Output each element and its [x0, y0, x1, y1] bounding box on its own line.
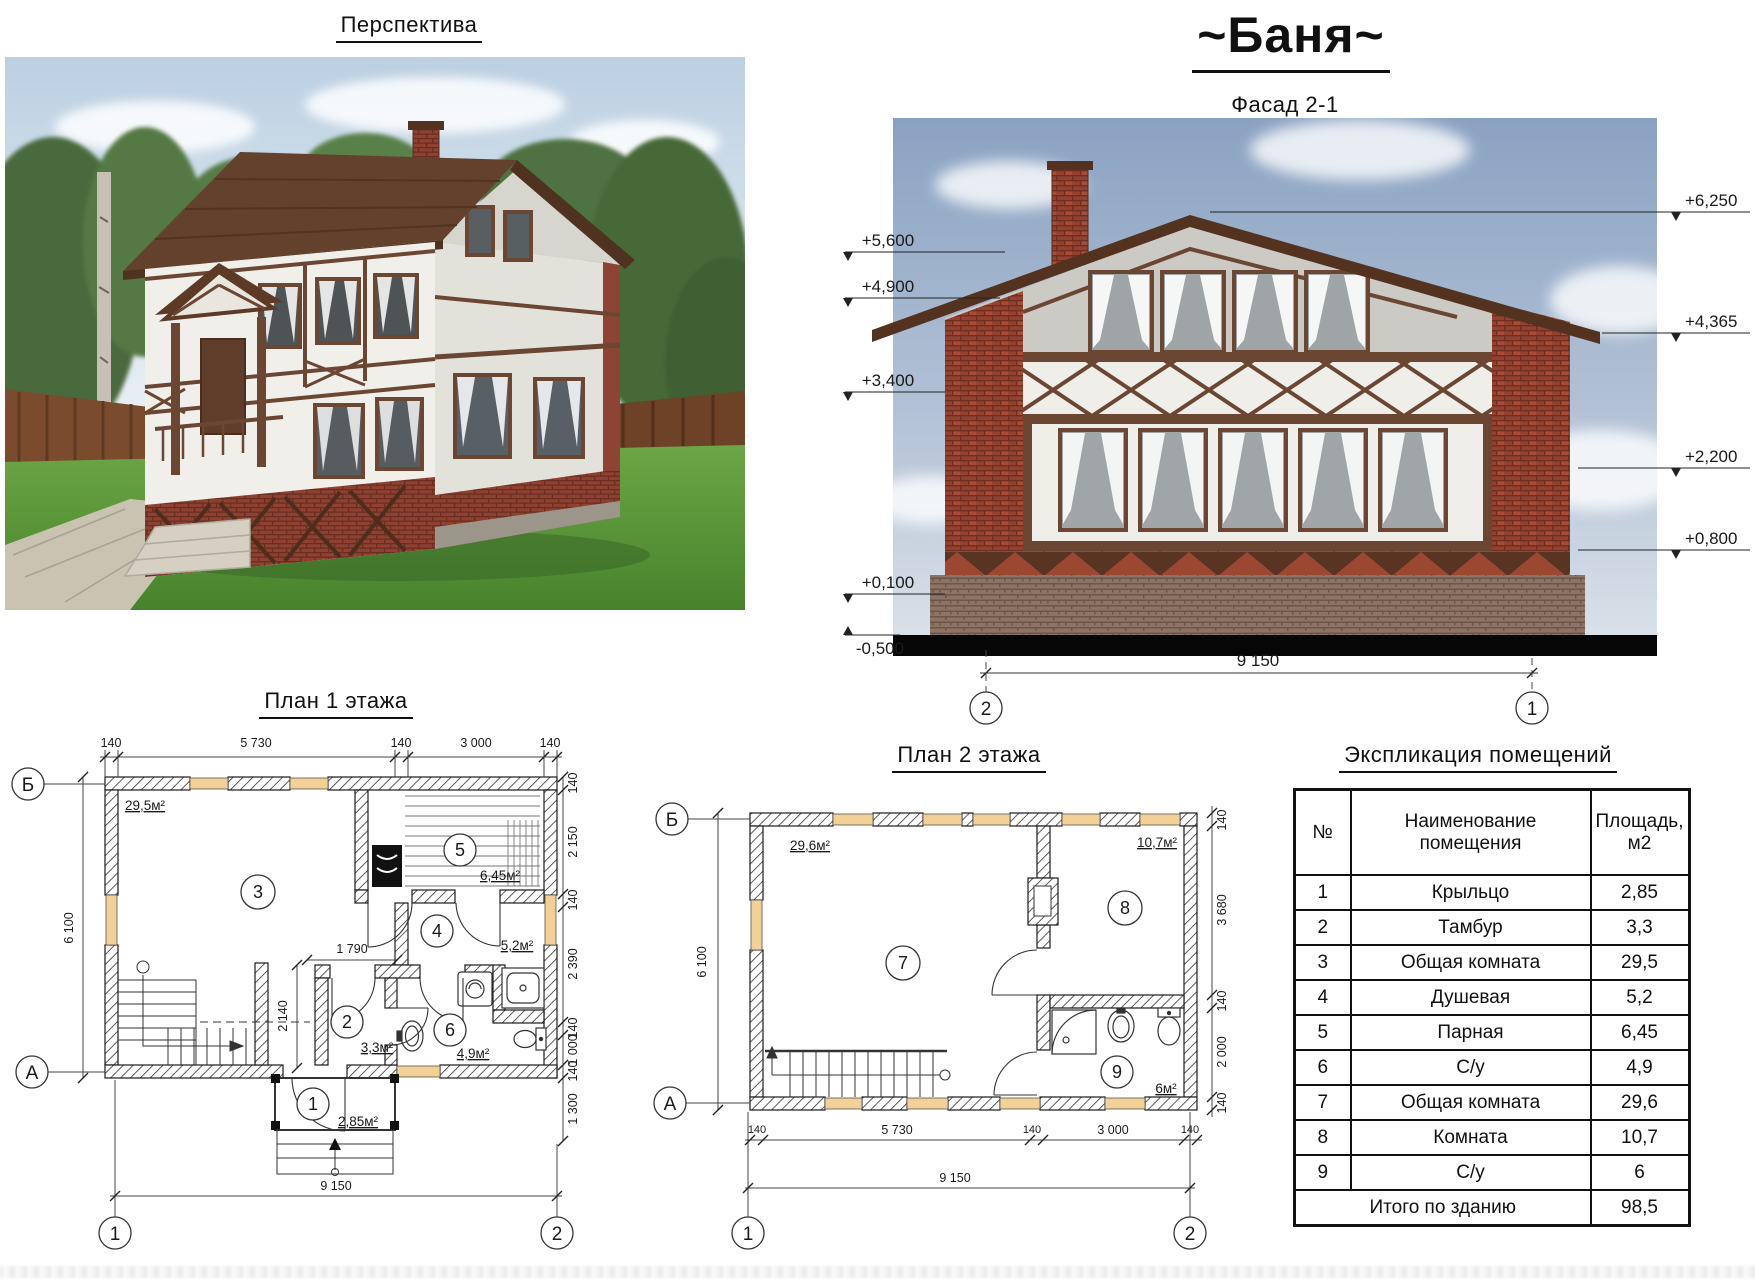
svg-text:140: 140	[1023, 1124, 1041, 1136]
row-area: 4,9	[1591, 1050, 1690, 1085]
row-area: 6,45	[1591, 1015, 1690, 1050]
plan2-shower-icon	[1052, 1010, 1096, 1054]
mark-3400: +3,400	[862, 371, 914, 390]
total-value: 98,5	[1591, 1190, 1690, 1226]
mark-4365: +4,365	[1685, 312, 1737, 331]
mark-5600: +5,600	[862, 231, 914, 250]
room-number: 3	[253, 882, 263, 902]
table-header-row: № Наименование помещения Площадь, м2	[1295, 790, 1690, 876]
mark-0100: +0,100	[862, 573, 914, 592]
porch	[271, 1074, 399, 1176]
room-area: 2,85м²	[338, 1114, 379, 1129]
scan-noise-strip	[0, 1266, 1755, 1278]
svg-text:2 000: 2 000	[1215, 1036, 1229, 1067]
room-number: 8	[1120, 898, 1130, 918]
table-row: 5 Парная 6,45	[1295, 1015, 1690, 1050]
row-num: 7	[1295, 1085, 1351, 1120]
room-area: 3,3м²	[361, 1040, 394, 1055]
chimney-flue	[1034, 886, 1051, 916]
svg-text:9 150: 9 150	[939, 1171, 970, 1185]
plan2-drawing: 7 29,6м² 8 10,7м² 9 6м² 6 100 140	[595, 655, 1255, 1280]
room-number: 1	[308, 1094, 318, 1114]
axis-b: Б	[22, 775, 34, 796]
row-num: 1	[1295, 875, 1351, 910]
svg-text:2 150: 2 150	[566, 826, 580, 857]
svg-text:5 730: 5 730	[881, 1123, 912, 1137]
room-area: 5,2м²	[501, 938, 534, 953]
plan2-dimensions	[718, 806, 1212, 1217]
table-row: 9 С/у 6	[1295, 1155, 1690, 1190]
row-area: 5,2	[1591, 980, 1690, 1015]
facade-drawing-main: +5,600 +4,900 +3,400 +0,100 -0,500 +6,25…	[760, 115, 1755, 730]
room-number: 2	[342, 1012, 352, 1032]
svg-text:3 000: 3 000	[1097, 1123, 1128, 1137]
row-area: 6	[1591, 1155, 1690, 1190]
row-area: 2,85	[1591, 875, 1690, 910]
col-number-header: №	[1295, 790, 1351, 876]
room-area: 6м²	[1155, 1081, 1177, 1096]
total-label: Итого по зданию	[1295, 1190, 1591, 1226]
axis-a: А	[26, 1063, 39, 1084]
row-num: 6	[1295, 1050, 1351, 1085]
plan2-rooms: 7 29,6м² 8 10,7м² 9 6м²	[790, 835, 1178, 1096]
row-name: С/у	[1351, 1155, 1591, 1190]
explication-title: Экспликация помещений	[1278, 742, 1678, 773]
row-num: 3	[1295, 945, 1351, 980]
row-area: 10,7	[1591, 1120, 1690, 1155]
row-name: Душевая	[1351, 980, 1591, 1015]
table-row: 8 Комната 10,7	[1295, 1120, 1690, 1155]
table-row: 1 Крыльцо 2,85	[1295, 875, 1690, 910]
svg-text:140: 140	[1215, 810, 1229, 831]
room-number: 4	[432, 921, 442, 941]
room-number: 9	[1112, 1062, 1122, 1082]
drawing-sheet: Перспектива ~Баня~ Фасад 2-1 План 1 этаж…	[0, 0, 1755, 1280]
row-name: Тамбур	[1351, 910, 1591, 945]
row-num: 8	[1295, 1120, 1351, 1155]
mark-6250: +6,250	[1685, 191, 1737, 210]
svg-text:140: 140	[540, 736, 561, 750]
axis-1: 1	[110, 1224, 121, 1245]
plan1-drawing: 3 29,5м² 5 6,45м² 4 5,2м² 2 3,3м² 6 4,9м…	[0, 630, 600, 1280]
room-number: 6	[445, 1020, 455, 1040]
main-title: ~Баня~	[1091, 6, 1491, 73]
svg-text:5 730: 5 730	[240, 736, 271, 750]
svg-text:6 100: 6 100	[695, 946, 709, 977]
plan2-sink-icon	[1108, 1008, 1134, 1042]
row-area: 29,6	[1591, 1085, 1690, 1120]
row-name: Общая комната	[1351, 1085, 1591, 1120]
room-number: 5	[455, 840, 465, 860]
row-area: 3,3	[1591, 910, 1690, 945]
perspective-title: Перспектива	[259, 12, 559, 43]
table-row: 6 С/у 4,9	[1295, 1050, 1690, 1085]
svg-text:140: 140	[566, 1061, 580, 1082]
svg-text:140: 140	[1215, 1093, 1229, 1114]
svg-text:140: 140	[566, 890, 580, 911]
facade-axis-1: 1	[1527, 699, 1538, 720]
row-num: 4	[1295, 980, 1351, 1015]
axis-a: А	[664, 1094, 677, 1115]
room-area: 29,5м²	[125, 798, 166, 813]
svg-text:140: 140	[101, 736, 122, 750]
row-name: Крыльцо	[1351, 875, 1591, 910]
row-name: Комната	[1351, 1120, 1591, 1155]
plan2-toilet-icon	[1158, 1008, 1180, 1045]
mark-2200: +2,200	[1685, 447, 1737, 466]
svg-text:140: 140	[566, 773, 580, 794]
room-area: 6,45м²	[480, 868, 521, 883]
plan2-doors	[992, 950, 1037, 1095]
svg-text:3 680: 3 680	[1215, 894, 1229, 925]
plan1-rooms: 3 29,5м² 5 6,45м² 4 5,2м² 2 3,3м² 6 4,9м…	[125, 798, 534, 1129]
row-name: С/у	[1351, 1050, 1591, 1085]
table-row: 3 Общая комната 29,5	[1295, 945, 1690, 980]
table-total-row: Итого по зданию 98,5	[1295, 1190, 1690, 1226]
svg-text:2 390: 2 390	[566, 948, 580, 979]
room-area: 29,6м²	[790, 838, 831, 853]
svg-text:6 100: 6 100	[62, 912, 76, 943]
room-area: 10,7м²	[1137, 835, 1178, 850]
row-name: Парная	[1351, 1015, 1591, 1050]
row-name: Общая комната	[1351, 945, 1591, 980]
svg-text:9 150: 9 150	[320, 1179, 351, 1193]
explication-table: № Наименование помещения Площадь, м2 1 К…	[1293, 788, 1691, 1227]
table-row: 4 Душевая 5,2	[1295, 980, 1690, 1015]
axis-2: 2	[1185, 1224, 1196, 1245]
svg-text:1 790: 1 790	[336, 942, 367, 956]
axis-2: 2	[552, 1224, 563, 1245]
row-area: 29,5	[1591, 945, 1690, 980]
shower-tray-icon	[502, 968, 544, 1008]
svg-text:140: 140	[1215, 991, 1229, 1012]
mark-0800: +0,800	[1685, 529, 1737, 548]
plan1-walls	[105, 777, 557, 1078]
col-name-header: Наименование помещения	[1351, 790, 1591, 876]
table-row: 2 Тамбур 3,3	[1295, 910, 1690, 945]
room-area: 4,9м²	[457, 1046, 490, 1061]
table-row: 7 Общая комната 29,6	[1295, 1085, 1690, 1120]
room-number: 7	[898, 953, 908, 973]
plan2-stairs	[765, 1047, 950, 1097]
svg-text:2 140: 2 140	[276, 1000, 290, 1031]
mark-4900: +4,900	[862, 277, 914, 296]
row-num: 5	[1295, 1015, 1351, 1050]
svg-text:1 300: 1 300	[566, 1093, 580, 1124]
svg-text:3 000: 3 000	[460, 736, 491, 750]
axis-b: Б	[666, 810, 678, 831]
svg-text:140: 140	[748, 1124, 766, 1136]
svg-text:140: 140	[1181, 1124, 1199, 1136]
col-area-header: Площадь, м2	[1591, 790, 1690, 876]
plan1-windows	[106, 778, 556, 1077]
plan1-axes: Б А 1 2	[12, 768, 573, 1249]
row-num: 2	[1295, 910, 1351, 945]
sink-icon	[397, 1021, 423, 1051]
row-num: 9	[1295, 1155, 1351, 1190]
svg-text:140: 140	[391, 736, 412, 750]
axis-1: 1	[743, 1224, 754, 1245]
toilet-icon	[514, 1028, 546, 1050]
stove-icon	[372, 845, 402, 887]
perspective-render	[5, 57, 745, 610]
